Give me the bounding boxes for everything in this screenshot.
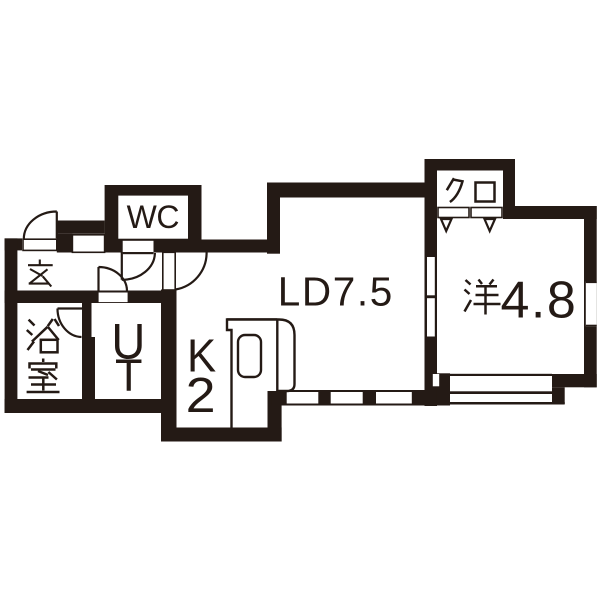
svg-text:WC: WC	[127, 199, 179, 235]
svg-text:LD7.5: LD7.5	[278, 269, 394, 315]
svg-text:2: 2	[186, 367, 216, 422]
svg-text:4.8: 4.8	[501, 271, 578, 329]
svg-text:T: T	[115, 350, 143, 401]
